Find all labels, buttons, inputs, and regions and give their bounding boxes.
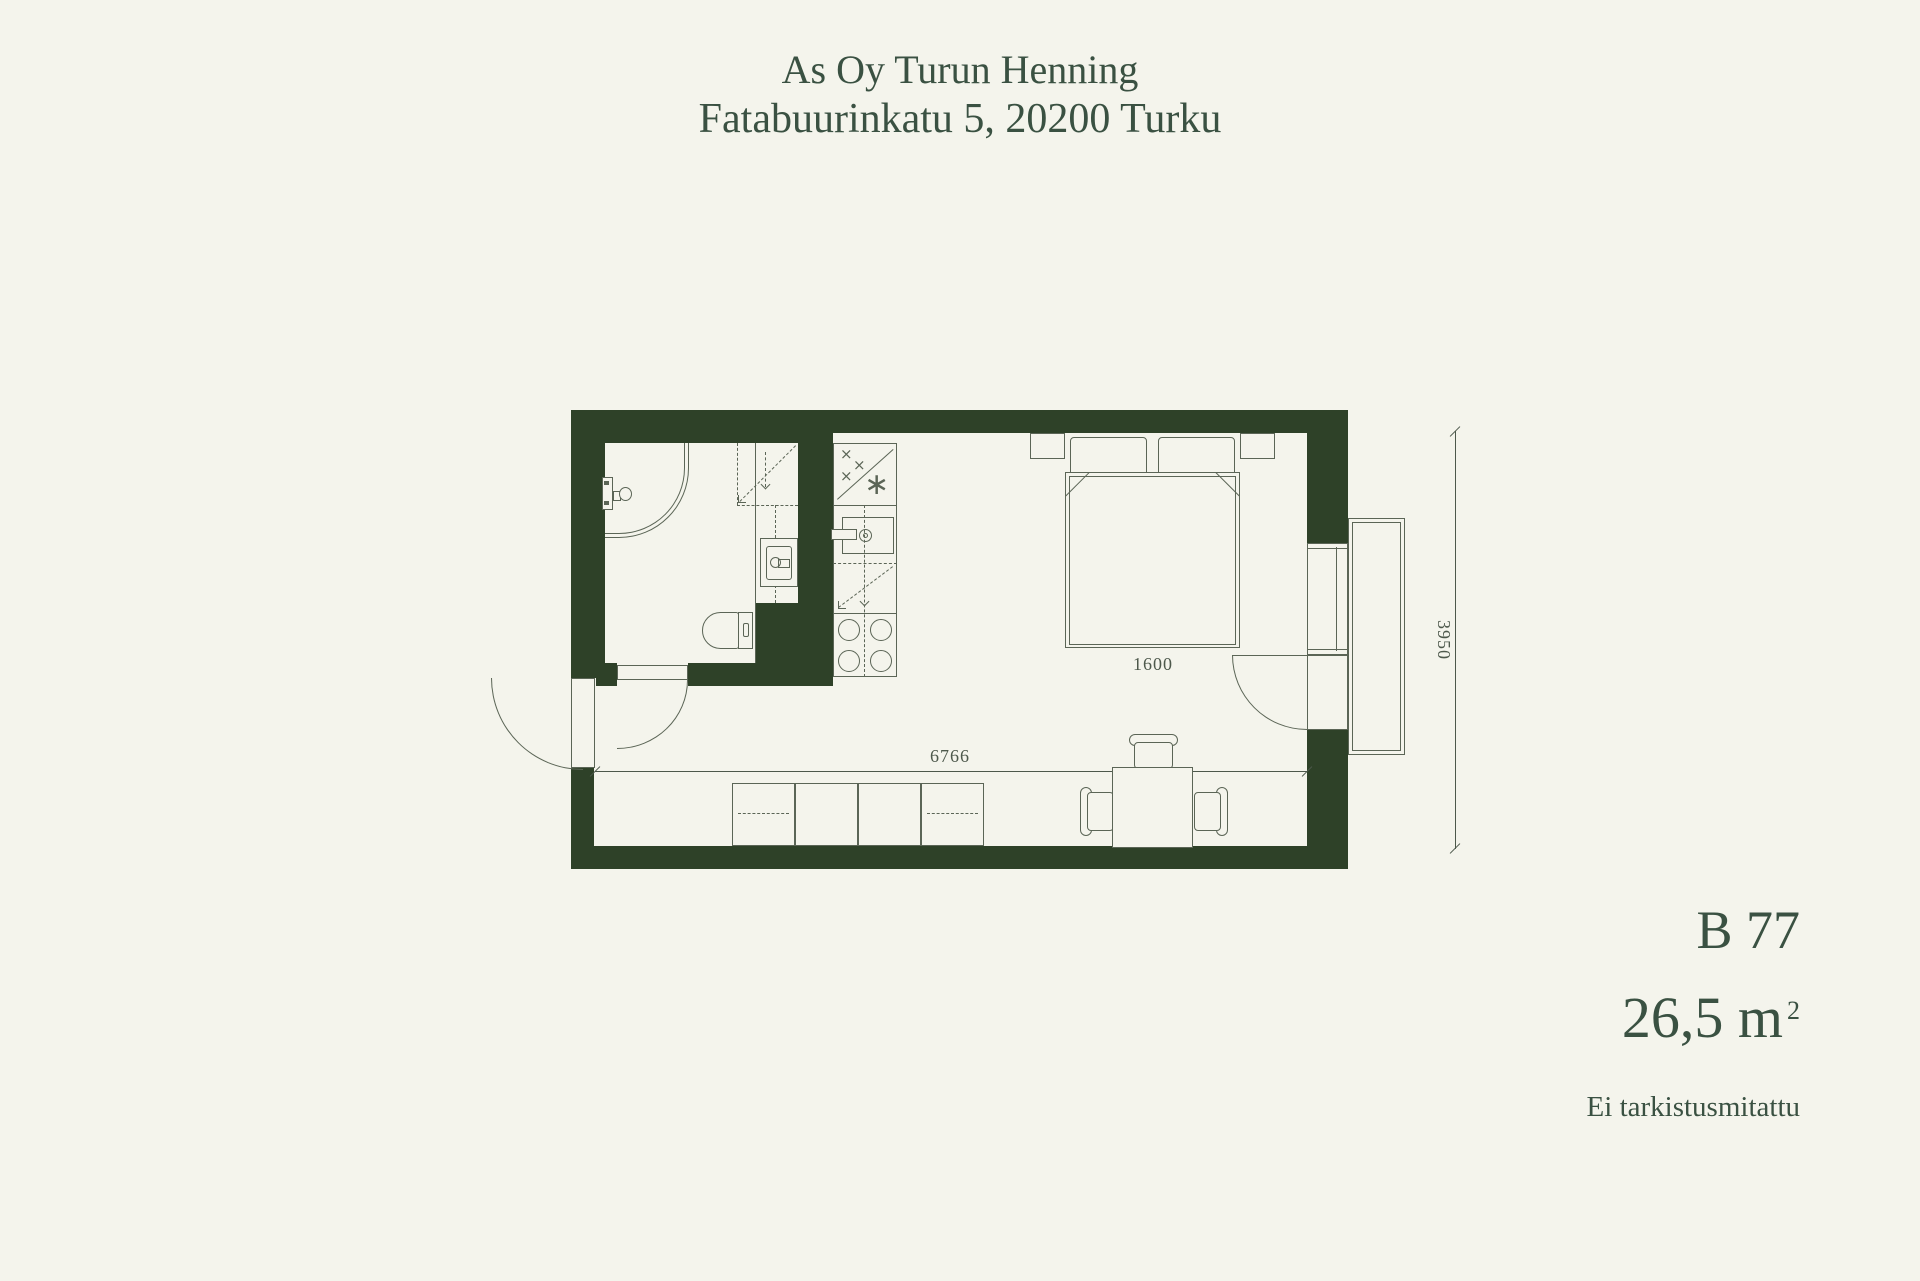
wardrobe bbox=[732, 783, 795, 846]
balcony-door-opening bbox=[1307, 655, 1348, 730]
nightstand bbox=[1030, 433, 1065, 459]
chair-seat bbox=[1194, 792, 1221, 831]
shower-valve-tick-bottom bbox=[604, 501, 609, 505]
fridge-cross-icon: × bbox=[840, 447, 853, 462]
chair-seat bbox=[1087, 792, 1114, 831]
nightstand bbox=[1240, 433, 1275, 459]
pillow bbox=[1070, 437, 1147, 477]
unit-info: B 77 26,5 m2 Ei tarkistusmitattu bbox=[1587, 903, 1800, 1122]
washbasin-faucet-spout bbox=[778, 559, 790, 568]
kitchen-divider-3 bbox=[833, 613, 897, 614]
bathroom-corner-wall bbox=[755, 603, 798, 663]
wardrobe bbox=[858, 783, 921, 846]
unit-area-value: 26,5 m bbox=[1622, 985, 1783, 1050]
wardrobe bbox=[795, 783, 858, 846]
washer-reservation-bottom bbox=[737, 505, 798, 506]
wardrobe bbox=[921, 783, 984, 846]
window-frame-bottom bbox=[1308, 649, 1347, 650]
bathroom-niche-divider bbox=[755, 443, 756, 663]
wardrobe-shelf-line bbox=[738, 813, 789, 814]
shower-valve-knob bbox=[619, 487, 632, 501]
kitchen-sink-drainboard bbox=[831, 529, 857, 540]
window bbox=[1307, 543, 1348, 655]
shower-valve-tick-top bbox=[604, 481, 609, 485]
toilet-bowl bbox=[702, 612, 739, 649]
floorplan-page: As Oy Turun Henning Fatabuurinkatu 5, 20… bbox=[0, 0, 1920, 1281]
bed-width-label: 1600 bbox=[1103, 654, 1203, 675]
unit-area: 26,5 m2 bbox=[1587, 989, 1800, 1047]
unit-id: B 77 bbox=[1587, 903, 1800, 957]
room-width-label: 6766 bbox=[900, 746, 1000, 767]
window-frame-top bbox=[1308, 548, 1347, 549]
bed-blanket bbox=[1069, 476, 1236, 645]
entry-door-swing bbox=[491, 678, 583, 770]
washer-arrow-head bbox=[738, 495, 746, 503]
dining-table bbox=[1112, 767, 1193, 848]
kitchen-divider-1 bbox=[833, 505, 897, 506]
stove-burner bbox=[870, 619, 892, 641]
dimension-line-width bbox=[595, 771, 1307, 772]
french-balcony-inner bbox=[1352, 522, 1401, 751]
kitchen-centerline bbox=[864, 505, 865, 677]
unit-area-superscript: 2 bbox=[1787, 996, 1800, 1025]
wardrobe-shelf-line bbox=[927, 813, 978, 814]
bathroom-door bbox=[617, 665, 688, 680]
dishwasher-arrow-head bbox=[838, 601, 846, 609]
stove-burner bbox=[838, 619, 860, 641]
window-mullion bbox=[1336, 547, 1337, 651]
toilet-flush-button bbox=[743, 623, 749, 637]
stove-burner bbox=[838, 650, 860, 672]
dimension-line-depth bbox=[1455, 431, 1456, 849]
stove-burner bbox=[870, 650, 892, 672]
pillow bbox=[1158, 437, 1235, 477]
chair-seat bbox=[1134, 742, 1173, 769]
unit-note: Ei tarkistusmitattu bbox=[1587, 1093, 1800, 1122]
kitchen-divider-2 bbox=[833, 563, 897, 564]
freezer-star-icon: ∗ bbox=[864, 470, 889, 500]
fridge-cross-icon: × bbox=[840, 469, 853, 484]
room-depth-label: 3950 bbox=[1434, 596, 1454, 684]
